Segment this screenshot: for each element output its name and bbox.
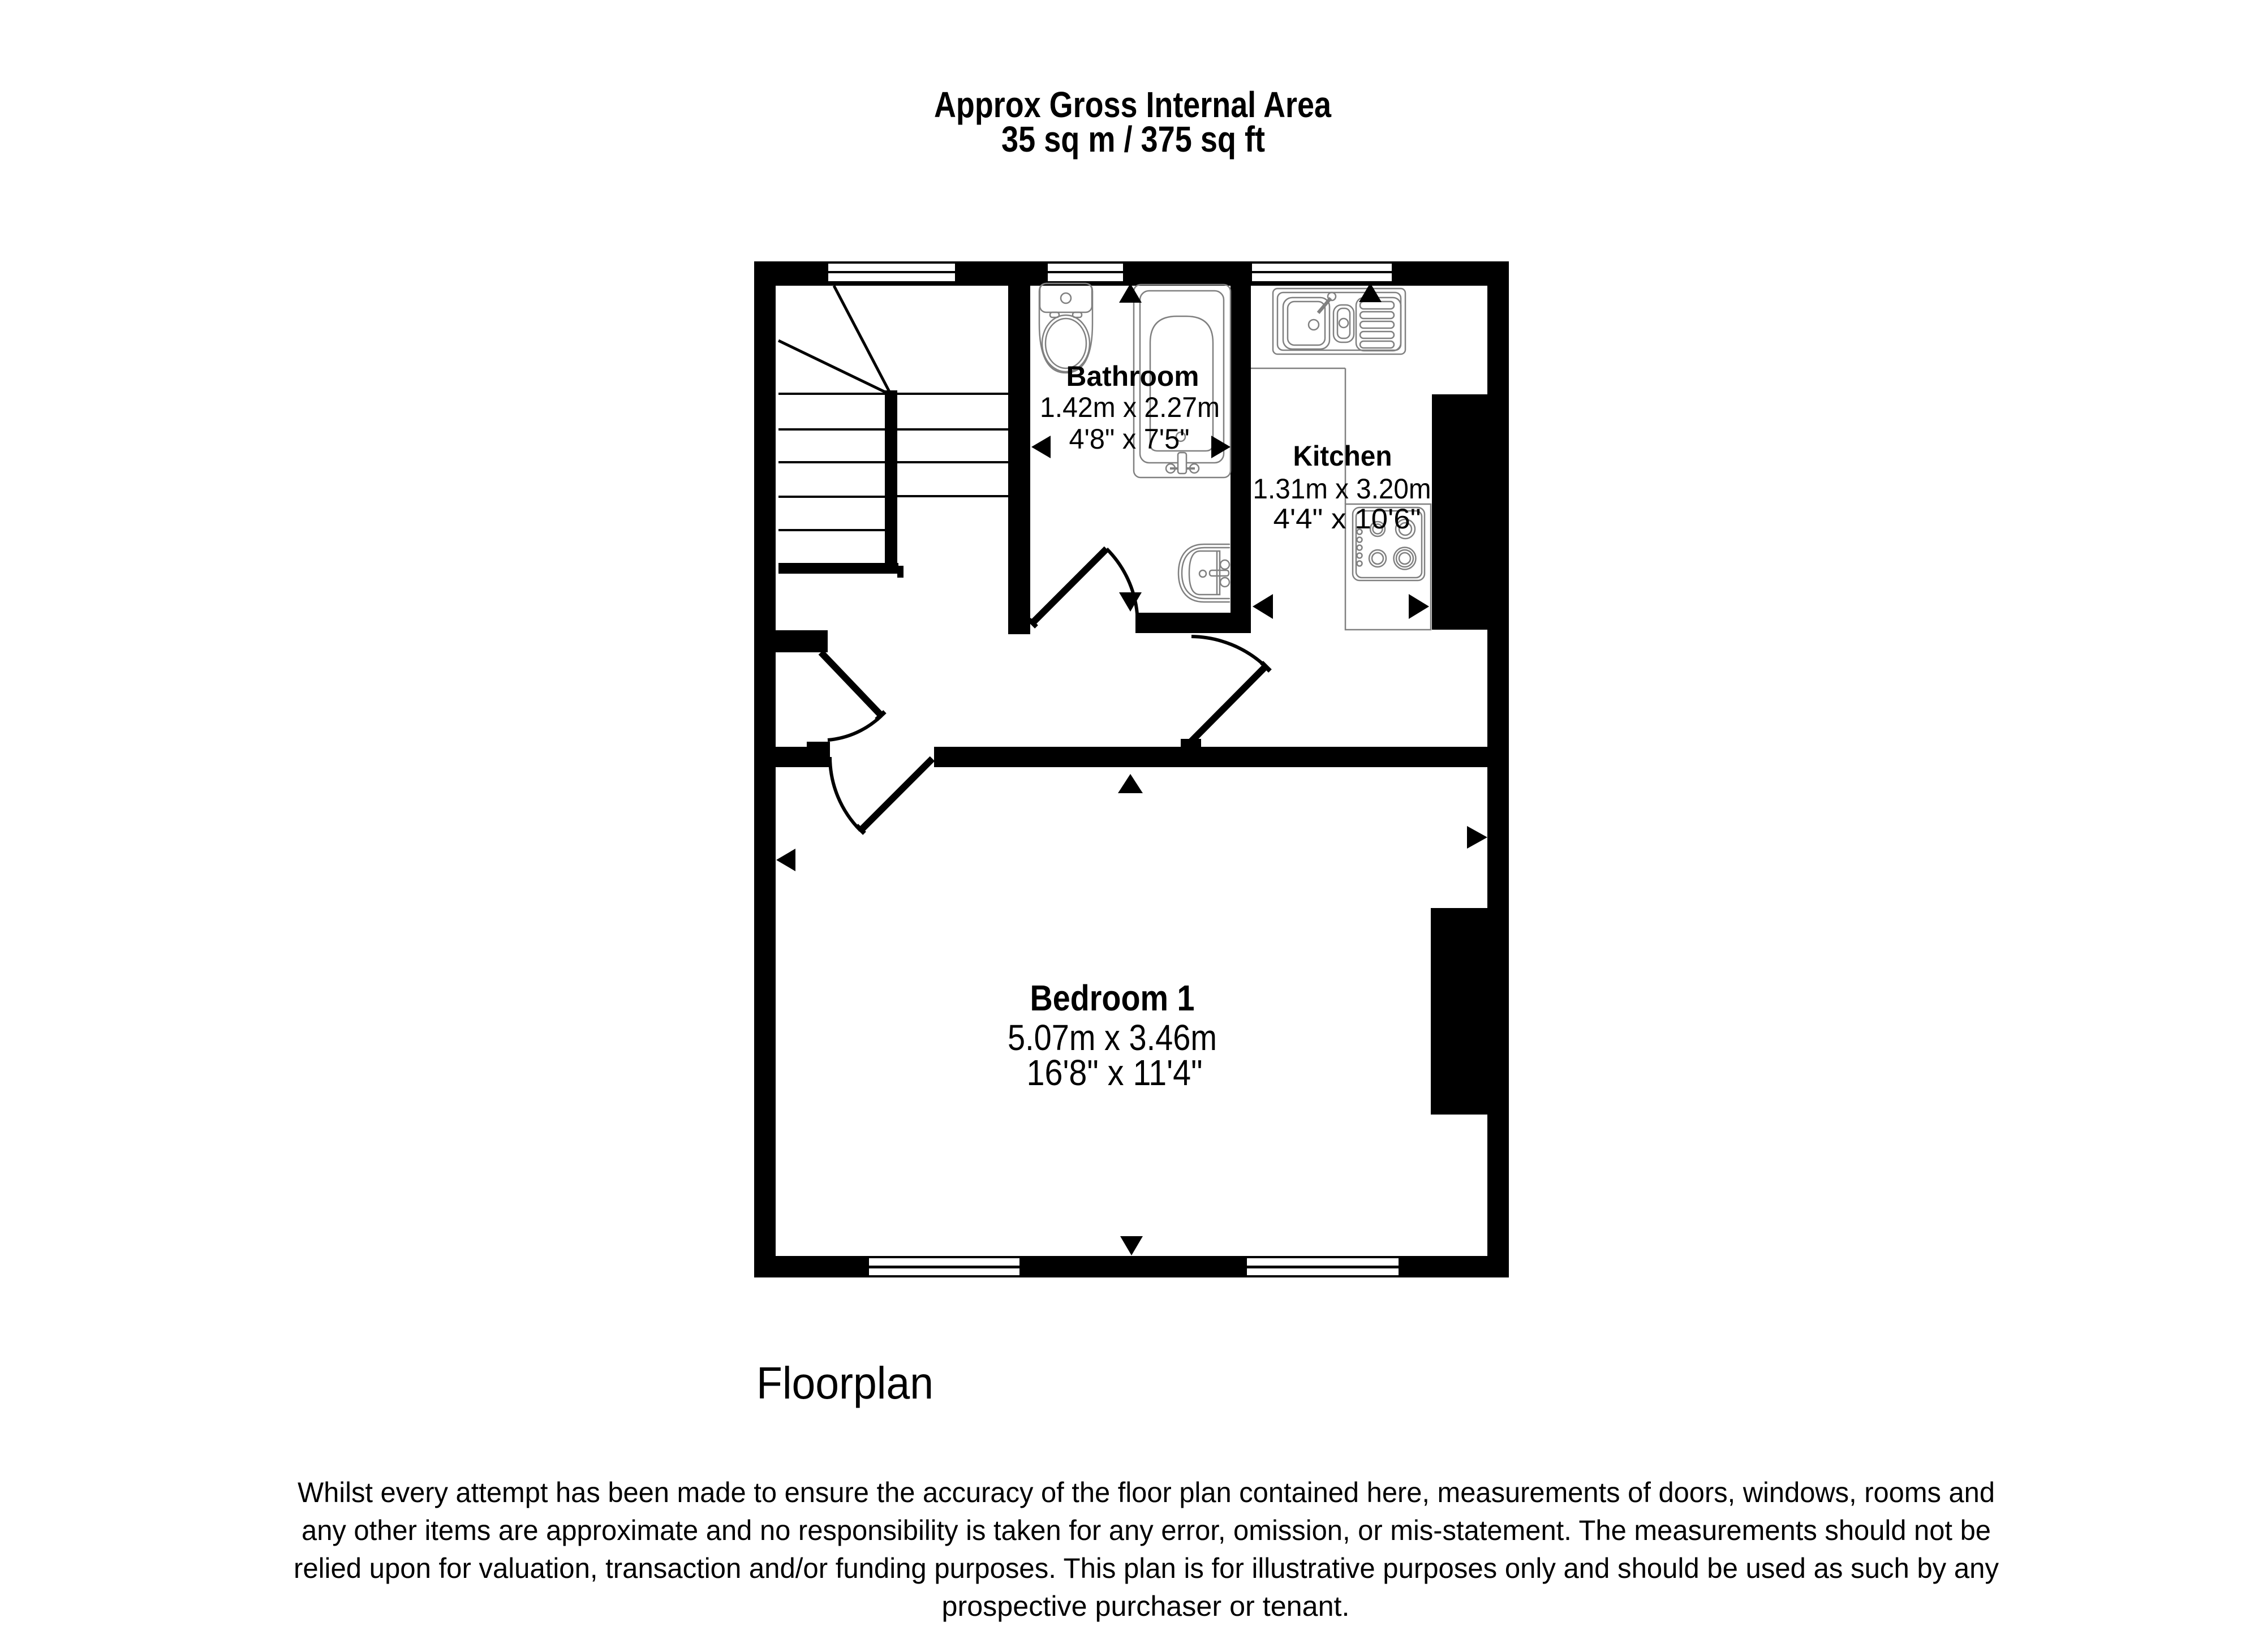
svg-text:35 sq m / 375 sq ft: 35 sq m / 375 sq ft: [1001, 119, 1265, 160]
svg-text:Whilst every attempt has been: Whilst every attempt has been made to en…: [298, 1477, 1995, 1508]
svg-text:4'4" x 10'6": 4'4" x 10'6": [1274, 503, 1421, 535]
svg-text:1.31m x 3.20m: 1.31m x 3.20m: [1253, 473, 1431, 505]
svg-text:16'8" x 11'4": 16'8" x 11'4": [1027, 1052, 1203, 1093]
svg-text:1.42m x 2.27m: 1.42m x 2.27m: [1040, 392, 1220, 423]
svg-text:prospective purchaser or tenan: prospective purchaser or tenant.: [942, 1590, 1350, 1622]
svg-text:Bedroom 1: Bedroom 1: [1030, 978, 1195, 1018]
svg-text:Bathroom: Bathroom: [1066, 360, 1199, 392]
svg-text:any other items are approximat: any other items are approximate and no r…: [302, 1515, 1991, 1546]
svg-text:relied upon for valuation, tra: relied upon for valuation, transaction a…: [294, 1552, 1999, 1584]
svg-text:Floorplan: Floorplan: [756, 1358, 933, 1408]
svg-text:Kitchen: Kitchen: [1293, 440, 1392, 472]
svg-text:4'8" x 7'5": 4'8" x 7'5": [1069, 423, 1190, 455]
